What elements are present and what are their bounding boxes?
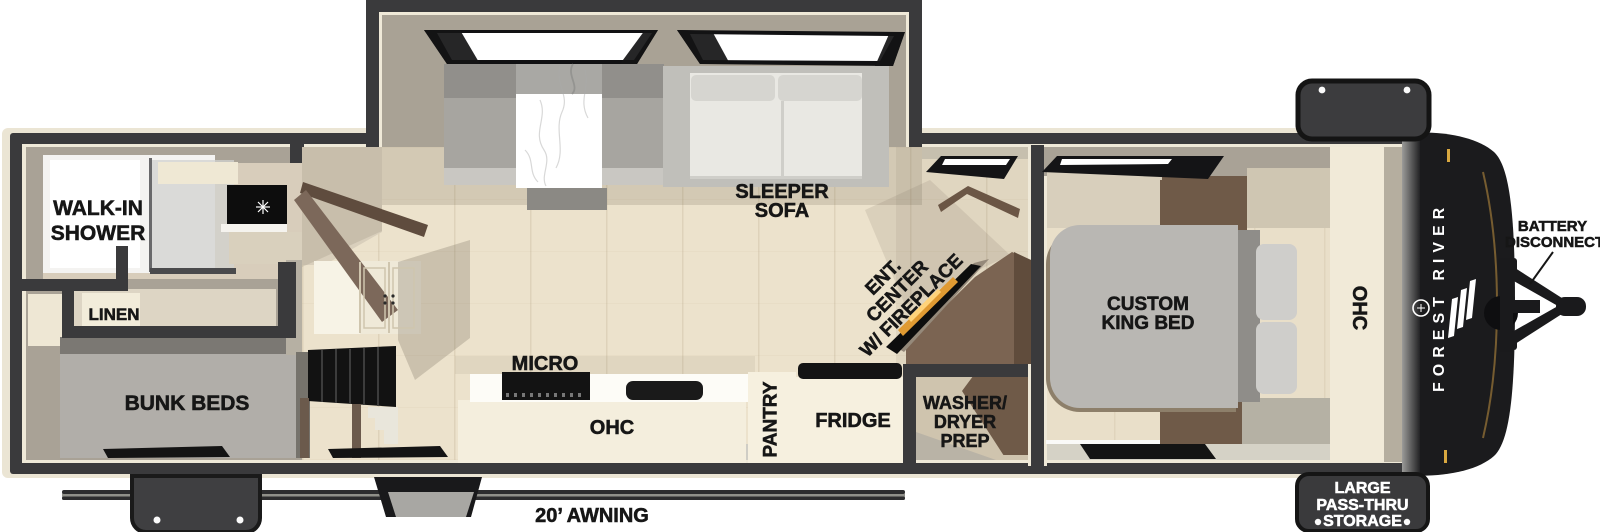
svg-text:FOREST RIVER: FOREST RIVER: [1431, 202, 1448, 392]
